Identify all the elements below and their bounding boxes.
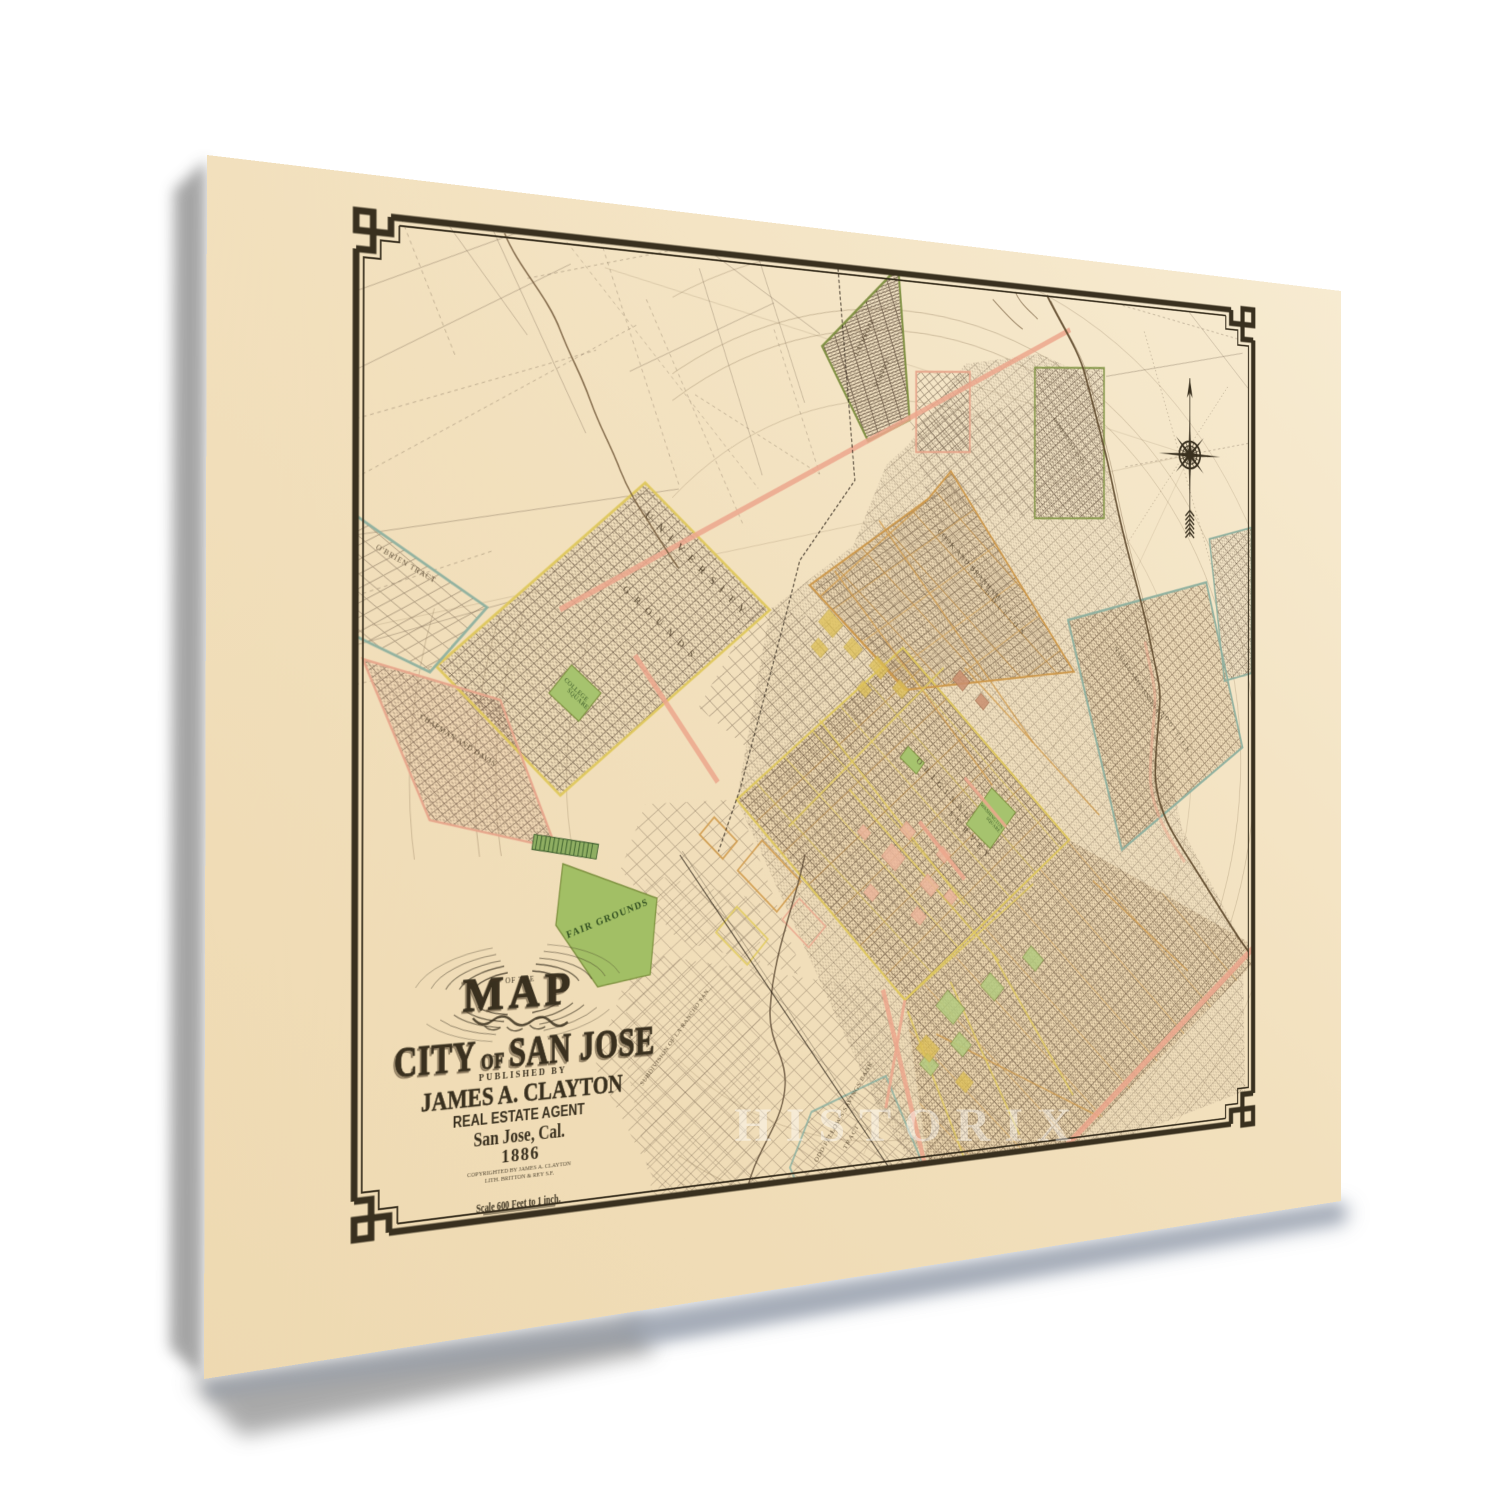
svg-text:MAP: MAP bbox=[463, 962, 576, 1021]
